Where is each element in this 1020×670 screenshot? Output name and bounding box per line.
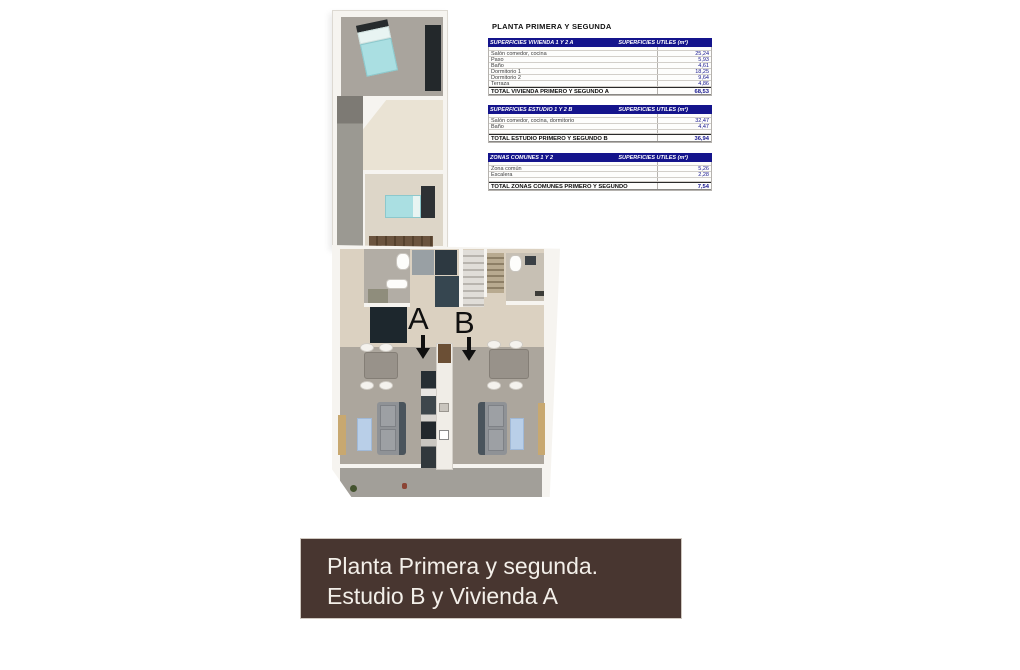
unit-a-label: A [408, 303, 429, 334]
interior-wall [506, 301, 544, 305]
single-bed [385, 195, 421, 218]
table-header-left: SUPERFICIES VIVIENDA 1 Y 2 A [490, 40, 573, 46]
table-header-left: ZONAS COMUNES 1 Y 2 [490, 155, 553, 161]
interior-wall [364, 303, 410, 307]
kitchen-appliance [439, 430, 449, 440]
unit-b-label: B [454, 307, 475, 338]
kitchen-cabinet-brown [438, 344, 451, 363]
wall-segment-dark [535, 291, 544, 296]
interior-wall [484, 249, 487, 297]
chair [360, 343, 374, 352]
landing-gray [412, 250, 434, 275]
bench [368, 289, 388, 303]
table-vivienda: SUPERFICIES VIVIENDA 1 Y 2 A SUPERFICIES… [488, 38, 712, 96]
window-frame [538, 403, 545, 455]
stairs [463, 250, 484, 307]
banner-line-2: Estudio B y Vivienda A [327, 581, 681, 611]
table-header-right: SUPERFICIES UTILES (m²) [618, 40, 710, 46]
interior-wall [459, 249, 463, 307]
wardrobe-brown [369, 236, 433, 247]
arrow-down-icon [462, 337, 476, 362]
kitchen-appliance-column [421, 371, 436, 468]
sofa [478, 402, 507, 455]
landing-dark [435, 250, 457, 275]
tables-title: PLANTA PRIMERA Y SEGUNDA [492, 22, 612, 31]
table-header-right: SUPERFICIES UTILES (m²) [618, 107, 710, 113]
chair [487, 340, 501, 349]
banner-line-1: Planta Primera y segunda. [327, 551, 681, 581]
toilet [509, 255, 522, 272]
flower-pot-icon [402, 483, 407, 489]
wardrobe-dark [425, 25, 441, 91]
sink-dark [525, 256, 536, 265]
sink [396, 253, 410, 270]
rug [357, 418, 372, 451]
arrow-down-icon [416, 335, 430, 360]
table-zonas-comunes: ZONAS COMUNES 1 Y 2 SUPERFICIES UTILES (… [488, 153, 712, 191]
title-banner: Planta Primera y segunda. Estudio B y Vi… [300, 538, 682, 619]
dining-table [364, 352, 398, 379]
table-header: SUPERFICIES ESTUDIO 1 Y 2 B SUPERFICIES … [488, 105, 712, 114]
window-frame [338, 415, 346, 455]
table-total-row: TOTAL VIVIENDA PRIMERO Y SEGUNDO A68,53 [489, 87, 711, 95]
shower-dark [370, 307, 407, 343]
terrace-floor [340, 468, 542, 497]
table-total-row: TOTAL ZONAS COMUNES PRIMERO Y SEGUNDO7,5… [489, 182, 711, 190]
table-header-left: SUPERFICIES ESTUDIO 1 Y 2 B [490, 107, 572, 113]
bathtub [386, 279, 408, 289]
bed-pillow [413, 196, 420, 217]
chair [487, 381, 501, 390]
terraza-floor [363, 100, 443, 170]
bed-headboard [421, 186, 435, 218]
floor-plan-top-wing [332, 10, 448, 248]
chair [379, 381, 393, 390]
chair [509, 381, 523, 390]
stairs-secondary [487, 253, 504, 293]
stair-landing [435, 276, 462, 307]
chair [379, 343, 393, 352]
side-corridor-floor [337, 96, 363, 249]
sofa [377, 402, 406, 455]
chair [509, 340, 523, 349]
table-header: SUPERFICIES VIVIENDA 1 Y 2 A SUPERFICIES… [488, 38, 712, 47]
floor-plan-main-wing: A B [332, 245, 560, 497]
rug [510, 418, 524, 450]
page: A B [0, 0, 1020, 670]
table-header: ZONAS COMUNES 1 Y 2 SUPERFICIES UTILES (… [488, 153, 712, 162]
kitchen-appliance [439, 403, 449, 412]
chair [360, 381, 374, 390]
plant-icon [350, 485, 357, 492]
dining-table [489, 349, 529, 379]
table-total-row: TOTAL ESTUDIO PRIMERO Y SEGUNDO B36,94 [489, 134, 711, 142]
table-estudio: SUPERFICIES ESTUDIO 1 Y 2 B SUPERFICIES … [488, 105, 712, 143]
table-header-right: SUPERFICIES UTILES (m²) [618, 155, 710, 161]
bed-mattress [360, 38, 398, 77]
